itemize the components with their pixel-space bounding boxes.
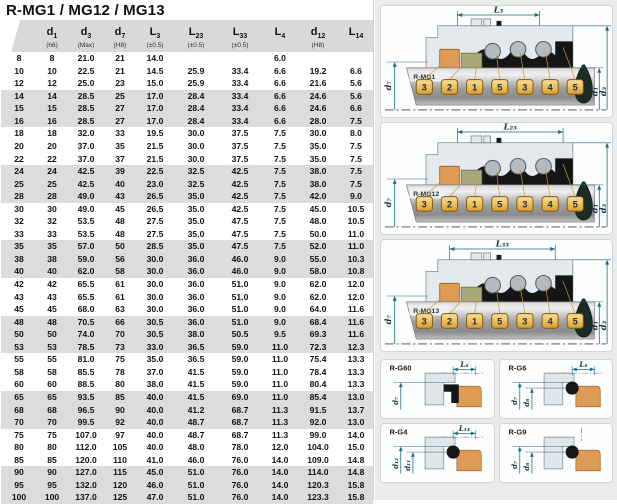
seat-diameter-label-1: d₇ [509,397,518,405]
column-header-d1: d1(h6) [37,20,67,52]
table-cell: 22.5 [135,165,175,178]
row-header: 60 [1,378,37,391]
table-cell: 37.5 [217,127,263,140]
table-cell: 48.0 [297,215,339,228]
table-cell: 14.8 [339,466,373,479]
table-cell: 68.7 [217,416,263,429]
table-cell: 47.5 [217,228,263,241]
table-cell: 7.5 [339,178,373,191]
table-corner [1,20,37,52]
table-cell: 26.5 [135,190,175,203]
spring [510,41,526,57]
table-cell: 30 [37,203,67,216]
table-cell: 16 [37,115,67,128]
table-cell: 30.0 [135,253,175,266]
table-cell: 59.0 [217,378,263,391]
table-cell: 35.0 [297,140,339,153]
table-cell: 88.5 [67,378,105,391]
table-cell: 120.3 [297,479,339,492]
table-cell: 18 [37,127,67,140]
table-cell: 78.5 [67,341,105,354]
table-cell: 25.9 [175,77,217,90]
table-cell: 50.5 [217,328,263,341]
table-cell: 39 [105,165,135,178]
table-cell: 61 [105,291,135,304]
table-cell: 51.0 [217,303,263,316]
o-ring [447,446,460,459]
table-cell: 14.0 [263,454,297,467]
table-cell: 6.6 [263,77,297,90]
gland-screw [471,19,482,26]
table-cell: 40.0 [135,404,175,417]
table-row: 585885.57837.041.559.011.078.413.3 [1,366,373,379]
table-cell: 30.0 [297,127,339,140]
table-cell: 7.5 [263,165,297,178]
table-cell: 57.0 [67,240,105,253]
table-cell: 35.0 [297,153,339,166]
table-cell: 48 [105,228,135,241]
table-cell: 45.0 [135,466,175,479]
table-cell: 17.0 [135,102,175,115]
part-number: 1 [472,316,477,326]
table-cell: 123.3 [297,491,339,504]
left-dimension-label: d₇ [383,81,393,91]
table-cell: 35.0 [135,353,175,366]
table-cell: 6.6 [339,65,373,78]
table-cell: 72.3 [297,341,339,354]
part-number: 4 [547,82,553,92]
table-cell: 40 [105,178,135,191]
table-cell: 33.4 [217,77,263,90]
o-ring [565,382,578,395]
table-cell: 6.6 [263,90,297,103]
table-cell: 12.0 [339,291,373,304]
table-row: 656593.58540.041.569.011.085.413.0 [1,391,373,404]
table-cell: 11.3 [263,404,297,417]
table-cell: 28.0 [297,115,339,128]
table-row: 121225.02315.025.933.46.621.65.6 [1,77,373,90]
seal-cross-section: R-MG12 3215345 L₂₃ d₇ d₁ d₃ [381,123,612,234]
table-cell: 53.5 [67,228,105,241]
table-cell: 91.5 [297,404,339,417]
table-cell: 100 [37,491,67,504]
part-number: 2 [447,316,452,326]
table-cell: 28.5 [67,115,105,128]
row-header: 40 [1,265,37,278]
gland-step [484,136,491,143]
table-cell: 9.0 [263,265,297,278]
table-cell: 9.0 [339,190,373,203]
seat-length-label: L₄ [578,360,587,369]
table-cell: 26.5 [135,203,175,216]
row-header: 12 [1,77,37,90]
left-dimension-label: d₇ [383,315,393,325]
table-cell: 59.0 [217,341,263,354]
table-cell: 21.6 [297,77,339,90]
table-cell: 80 [37,441,67,454]
table-row: 303049.04526.535.042.57.545.010.5 [1,203,373,216]
table-cell: 42.5 [217,190,263,203]
part-number: 5 [497,82,502,92]
table-row: 555581.07535.036.559.011.075.413.3 [1,353,373,366]
table-cell: 37.0 [67,140,105,153]
table-cell [297,52,339,65]
seat-elastomer [575,450,599,471]
seal-face [461,170,482,185]
table-cell: 35 [105,140,135,153]
table-cell: 107.0 [67,429,105,442]
table-cell: 85.4 [297,391,339,404]
table-cell: 48.7 [175,416,217,429]
table-cell: 37.5 [217,140,263,153]
table-cell: 109.0 [297,454,339,467]
seat-diameter-label-2: d₁₁ [403,460,412,471]
table-cell: 37.0 [135,366,175,379]
table-cell: 38.0 [135,378,175,391]
table-cell: 11.3 [263,429,297,442]
table-cell: 46.0 [217,265,263,278]
table-cell: 68.0 [67,303,105,316]
table-cell: 66 [105,316,135,329]
row-header: 48 [1,316,37,329]
table-row: 606088.58038.041.559.011.080.413.3 [1,378,373,391]
table-cell: 115 [105,466,135,479]
dimensions-table: d1(h6)d3(Max)d7(H8)L3(±0.5)L23(±0.5)L33(… [1,20,373,504]
table-cell: 35.0 [175,228,217,241]
table-cell: 80.4 [297,378,339,391]
table-cell: 76.0 [217,466,263,479]
part-number: 3 [422,199,427,209]
seal-diagram-card-r-mg12: R-MG12 3215345 L₂₃ d₇ d₁ d₃ [380,122,613,235]
row-header: 30 [1,203,37,216]
table-cell: 32.5 [175,178,217,191]
table-row: 7575107.09740.048.768.711.399.014.0 [1,429,373,442]
table-row: 151528.52717.028.433.46.624.66.6 [1,102,373,115]
table-cell: 32.0 [67,127,105,140]
table-cell: 30.0 [175,153,217,166]
table-cell: 52.0 [297,240,339,253]
table-cell: 7.5 [263,240,297,253]
seat-length-label: L₄ [459,360,468,369]
table-cell: 114.0 [297,466,339,479]
table-cell: 19.2 [297,65,339,78]
table-cell: 28.4 [175,102,217,115]
table-cell: 7.5 [339,153,373,166]
seat-diagrams-grid: R-G60 L₄ d₇ R-G6 L₄ d₇ d₈ R-G4 L₁₄ d₁₂ d… [380,359,613,483]
table-cell: 22 [37,153,67,166]
table-cell: 15.0 [339,441,373,454]
table-cell: 11.6 [339,316,373,329]
right-dimension-label-d3: d₃ [598,203,608,213]
part-number: 1 [472,199,477,209]
table-cell: 11.0 [263,391,297,404]
row-header: 100 [1,491,37,504]
table-cell: 40 [37,265,67,278]
table-cell: 51.0 [217,316,263,329]
row-header: 70 [1,416,37,429]
table-cell: 14.0 [339,429,373,442]
table-cell: 65 [37,391,67,404]
table-cell: 42.0 [297,190,339,203]
table-cell: 65.5 [67,291,105,304]
table-cell: 14.5 [135,65,175,78]
part-number: 4 [547,316,553,326]
table-cell: 137.0 [67,491,105,504]
table-cell: 73 [105,341,135,354]
table-cell: 99.5 [67,416,105,429]
row-header: 22 [1,153,37,166]
table-cell: 112.0 [67,441,105,454]
table-row: 8080112.010540.048.078.012.0104.015.0 [1,441,373,454]
table-cell: 25 [37,178,67,191]
gland-screw [471,136,482,143]
table-cell: 9.0 [263,253,297,266]
table-cell: 38 [37,253,67,266]
seal-face [461,287,482,302]
table-cell [175,52,217,65]
seal-diagram-card-r-mg13: R-MG13 3215345 L₃₃ d₇ d₁ d₃ [380,239,613,352]
part-number: 3 [422,316,427,326]
table-cell: 28 [37,190,67,203]
table-cell: 42.5 [217,203,263,216]
seat-section: R-G6 L₄ d₇ d₈ [500,360,613,418]
table-row: 8821.02114.06.0 [1,52,373,65]
table-cell: 23 [105,77,135,90]
table-row: 282849.04326.535.042.57.542.09.0 [1,190,373,203]
table-cell: 15.0 [135,77,175,90]
table-cell: 45 [105,203,135,216]
table-cell: 21 [105,65,135,78]
table-cell: 42 [37,278,67,291]
table-cell: 37.5 [217,153,263,166]
table-cell: 11.0 [263,353,297,366]
part-number: 5 [573,199,578,209]
table-cell: 49.0 [67,190,105,203]
table-cell: 27 [105,115,135,128]
table-cell: 92 [105,416,135,429]
table-row: 161628.52717.028.433.46.628.07.5 [1,115,373,128]
column-header-L33: L33(±0.5) [217,20,263,52]
spring [510,158,526,174]
table-cell: 42.5 [67,178,105,191]
table-cell: 127.0 [67,466,105,479]
table-cell: 30.5 [135,316,175,329]
table-cell: 21.0 [67,52,105,65]
table-cell: 110 [105,454,135,467]
table-cell: 7.5 [263,127,297,140]
table-row: 141428.52517.028.433.46.624.65.6 [1,90,373,103]
table-cell: 14.0 [263,466,297,479]
table-cell: 30.0 [175,127,217,140]
part-number: 3 [522,199,527,209]
table-cell: 30.0 [135,265,175,278]
diagrams-panel: R-MG1 3215345 L₃ d₇ d₁ d₃ R-MG12 3215345… [375,0,617,500]
table-cell: 36.5 [175,341,217,354]
column-header-d12: d12(H8) [297,20,339,52]
part-number: 3 [522,316,527,326]
table-cell: 10 [37,65,67,78]
table-cell: 43 [105,190,135,203]
table-row: 242442.53922.532.542.57.538.07.5 [1,165,373,178]
table-cell: 11.6 [339,328,373,341]
seat-diameter-label-1: d₁₂ [391,458,400,469]
table-row: 8585120.011041.046.076.014.0109.014.8 [1,454,373,467]
right-dimension-label-d3: d₃ [598,86,608,96]
table-cell: 55.0 [297,253,339,266]
part-number: 1 [472,82,477,92]
seat-ring [444,384,459,403]
seal-diagram-card-r-mg1: R-MG1 3215345 L₃ d₇ d₁ d₃ [380,5,613,118]
table-cell: 21.5 [135,153,175,166]
table-cell: 48.0 [175,441,217,454]
seat-length-label: L₁₄ [458,424,470,433]
table-cell: 65.5 [67,278,105,291]
gland-step [484,253,491,260]
table-row: 353557.05028.535.047.57.552.011.0 [1,240,373,253]
table-cell: 41.2 [175,404,217,417]
seat-diagram-card-r-g60: R-G60 L₄ d₇ [380,359,495,419]
table-cell: 41.5 [175,391,217,404]
table-cell: 51.0 [175,466,217,479]
table-cell: 37.0 [67,153,105,166]
table-cell: 7.5 [263,228,297,241]
table-cell: 42.5 [67,165,105,178]
row-header: 50 [1,328,37,341]
seat-elastomer [575,386,599,407]
table-cell: 11.0 [263,341,297,354]
table-cell: 61 [105,278,135,291]
table-cell: 120 [105,479,135,492]
table-cell: 68.7 [217,404,263,417]
table-cell: 9.5 [263,328,297,341]
table-row: 333353.54827.535.047.57.550.011.0 [1,228,373,241]
table-cell: 90 [105,404,135,417]
table-cell: 70 [37,416,67,429]
table-cell: 37 [105,153,135,166]
table-cell: 132.0 [67,479,105,492]
table-cell: 35.0 [175,190,217,203]
seat-elastomer [457,450,481,471]
row-header: 45 [1,303,37,316]
table-cell: 36.0 [175,253,217,266]
table-cell: 40.0 [135,416,175,429]
table-cell: 58 [105,265,135,278]
table-cell: 9.0 [263,291,297,304]
spring [510,275,526,291]
table-cell: 25 [105,90,135,103]
table-cell: 28.5 [67,90,105,103]
row-header: 58 [1,366,37,379]
row-header: 80 [1,441,37,454]
table-row: 454568.06330.036.051.09.064.011.6 [1,303,373,316]
column-header-L23: L23(±0.5) [175,20,217,52]
table-cell: 85 [105,391,135,404]
table-cell: 42.5 [217,165,263,178]
table-cell: 25.9 [175,65,217,78]
spring [485,43,501,59]
part-number: 3 [522,82,527,92]
table-cell: 14.0 [263,491,297,504]
table-cell: 105 [105,441,135,454]
table-cell: 15 [37,102,67,115]
row-header: 8 [1,52,37,65]
table-cell: 21.5 [135,140,175,153]
seal-cross-section: R-MG1 3215345 L₃ d₇ d₁ d₃ [381,6,612,117]
part-number: 5 [497,199,502,209]
table-cell: 41.0 [135,454,175,467]
table-cell: 63 [105,303,135,316]
table-cell: 35.0 [175,203,217,216]
table-cell: 68 [37,404,67,417]
row-header: 15 [1,102,37,115]
table-cell: 36.0 [175,265,217,278]
table-cell: 7.5 [263,190,297,203]
table-cell: 33 [105,127,135,140]
table-cell: 6.6 [263,102,297,115]
table-cell: 28.5 [67,102,105,115]
table-cell: 36.0 [175,278,217,291]
table-cell: 33.4 [217,102,263,115]
table-cell: 15.8 [339,491,373,504]
right-dimension-label-d3: d₃ [598,320,608,330]
table-cell: 47.0 [135,491,175,504]
column-header-L14: L14 [339,20,373,52]
table-cell: 104.0 [297,441,339,454]
table-cell: 13.7 [339,404,373,417]
elastomer [440,49,460,68]
table-cell: 59.0 [217,366,263,379]
column-header-d7: d7(H8) [105,20,135,52]
table-cell: 78.4 [297,366,339,379]
table-row: 323253.54827.535.047.57.548.010.5 [1,215,373,228]
table-cell: 51.0 [175,491,217,504]
table-cell: 7.5 [339,165,373,178]
row-header: 16 [1,115,37,128]
table-cell: 96.5 [67,404,105,417]
table-cell: 35 [37,240,67,253]
table-cell: 36.0 [175,291,217,304]
table-cell: 10.8 [339,265,373,278]
table-cell: 36.5 [175,353,217,366]
table-cell: 99.0 [297,429,339,442]
table-cell: 11.3 [263,416,297,429]
table-cell: 85.5 [67,366,105,379]
table-cell: 62.0 [297,278,339,291]
table-cell: 30.5 [135,328,175,341]
elastomer [440,166,460,185]
left-dimension-label: d₇ [383,198,393,208]
table-cell: 76.0 [217,491,263,504]
seal-face [461,53,482,68]
table-cell: 38.0 [297,165,339,178]
table-cell: 68.7 [217,429,263,442]
table-cell: 50 [105,240,135,253]
table-cell: 78.0 [217,441,263,454]
table-cell: 75 [105,353,135,366]
table-cell: 51.0 [217,278,263,291]
table-cell: 35.0 [175,215,217,228]
table-row: 222237.03721.530.037.57.535.07.5 [1,153,373,166]
table-cell: 58 [37,366,67,379]
table-row: 505074.07030.538.050.59.569.311.6 [1,328,373,341]
table-cell [339,52,373,65]
table-row: 181832.03319.530.037.57.530.08.0 [1,127,373,140]
table-cell: 68.4 [297,316,339,329]
table-cell: 14.0 [263,479,297,492]
table-cell: 13.0 [339,391,373,404]
table-cell: 11.0 [263,378,297,391]
table-cell: 25.0 [67,77,105,90]
